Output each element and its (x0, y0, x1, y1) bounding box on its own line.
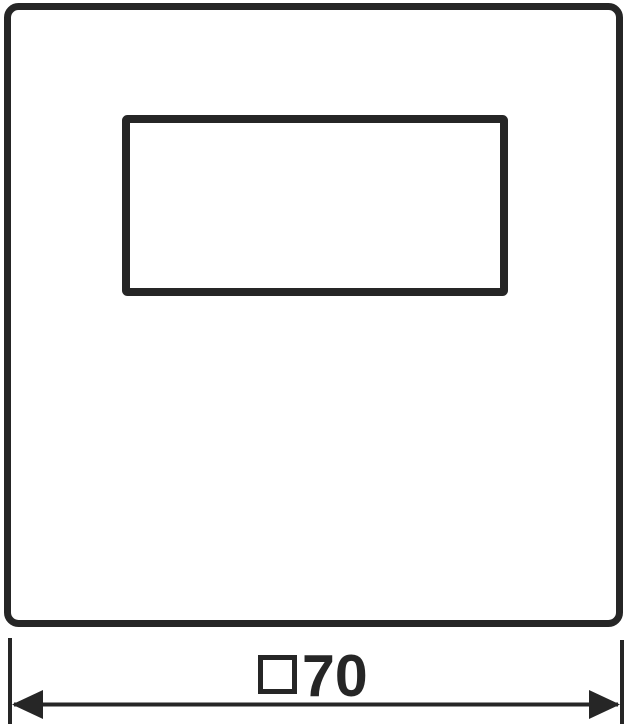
drawing-canvas: 70 (0, 0, 631, 724)
window-cutout-outline (126, 119, 504, 292)
arrowhead-right-icon (589, 690, 620, 719)
square-dimension-symbol-icon (261, 658, 295, 692)
technical-drawing: 70 (0, 0, 631, 724)
arrowhead-left-icon (12, 690, 43, 719)
dimension-value: 70 (302, 643, 368, 709)
cover-plate-outline (8, 7, 620, 624)
